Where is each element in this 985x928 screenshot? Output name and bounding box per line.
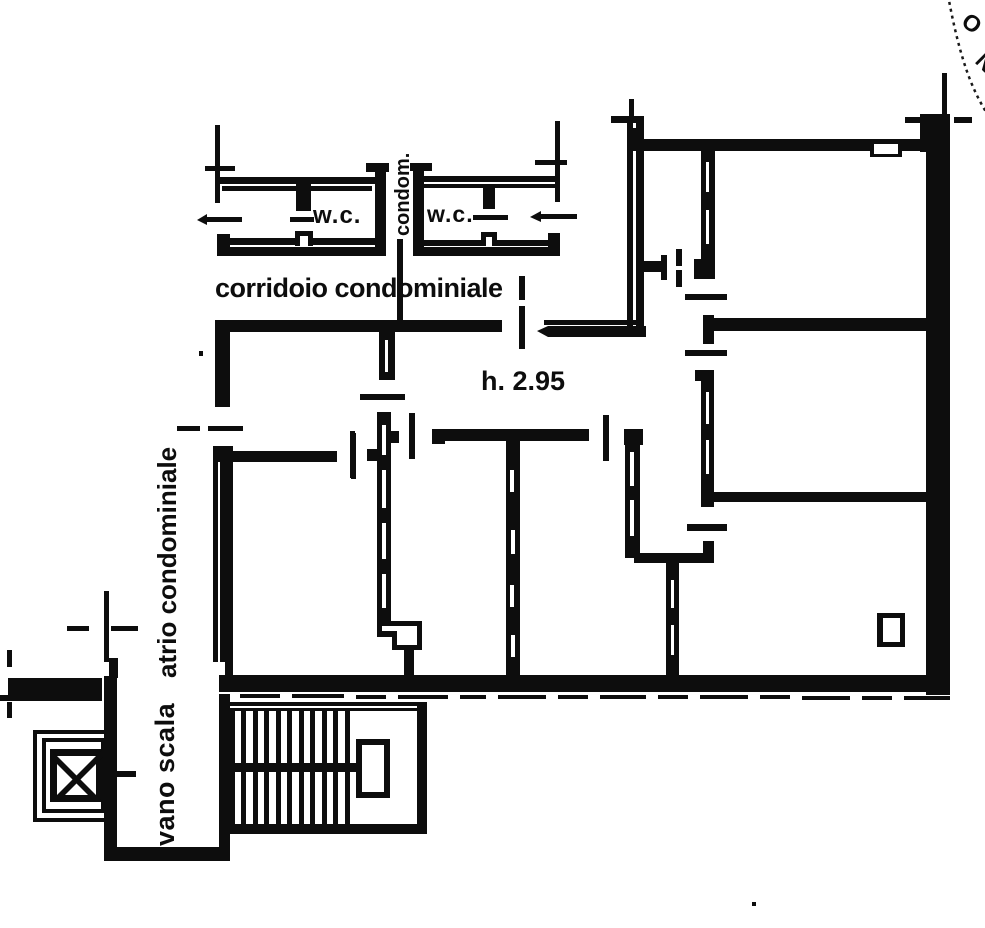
svg-text:w.c.: w.c.: [312, 202, 361, 229]
svg-text:vano scala: vano scala: [150, 702, 180, 846]
svg-text:w.c.: w.c.: [426, 201, 474, 227]
svg-text:h. 2.95: h. 2.95: [481, 366, 565, 396]
svg-text:O: O: [957, 7, 985, 39]
svg-text:corridoio condominiale: corridoio condominiale: [215, 273, 503, 303]
svg-text:atrio condominiale: atrio condominiale: [152, 447, 182, 678]
svg-text:S: S: [979, 77, 985, 105]
svg-text:N: N: [970, 47, 985, 77]
